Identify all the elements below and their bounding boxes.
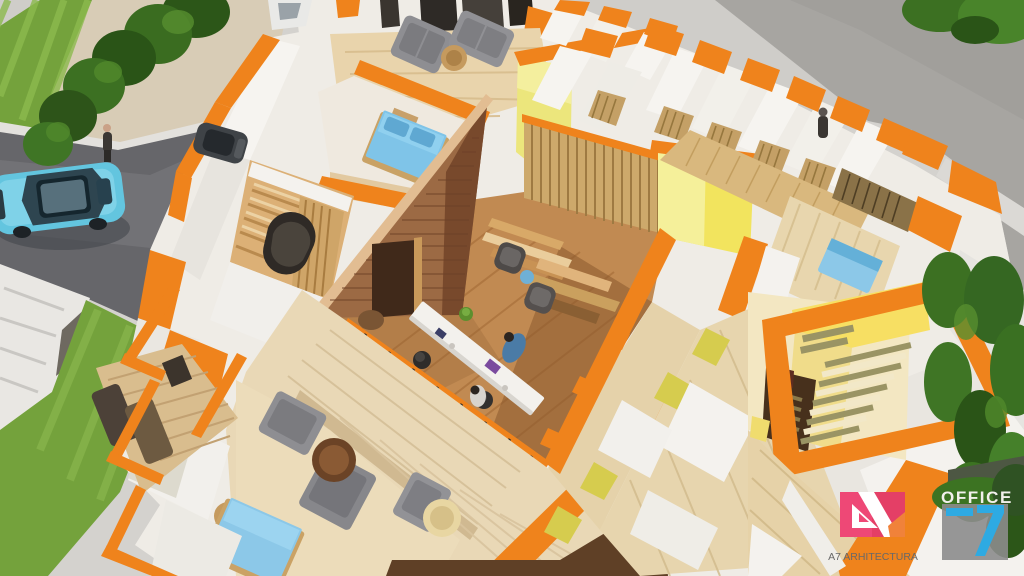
svg-text:A7 ARHITECTURA: A7 ARHITECTURA <box>828 551 918 563</box>
